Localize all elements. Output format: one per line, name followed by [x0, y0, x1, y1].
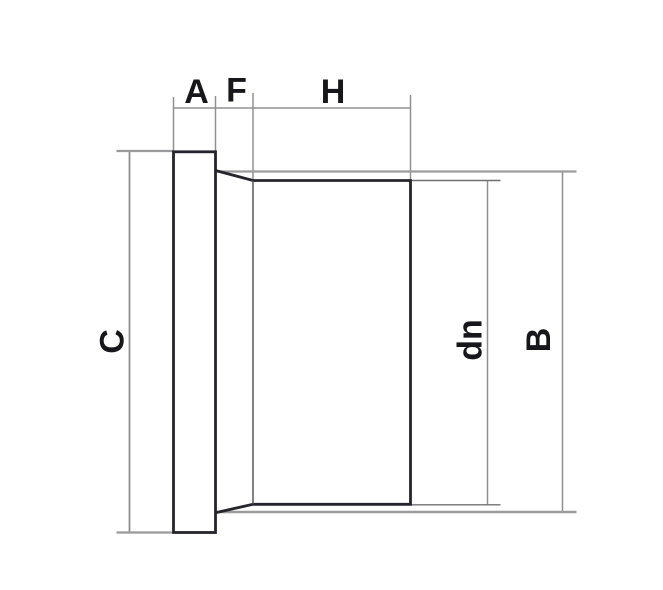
dim-label-dn: dn — [452, 319, 490, 361]
technical-drawing-page: A F H C dn B — [0, 0, 663, 590]
dim-label-h: H — [321, 73, 346, 111]
part-outline-group — [174, 152, 411, 533]
drawing-canvas: A F H C dn B — [0, 0, 663, 590]
dim-label-a: A — [184, 73, 209, 111]
dim-label-b: B — [520, 328, 558, 353]
dim-label-c: C — [94, 329, 132, 354]
dimension-labels-group: A F H C dn B — [94, 72, 559, 361]
dim-label-f: F — [226, 72, 247, 110]
flange-outline — [174, 152, 216, 533]
dimension-lines-group — [117, 93, 577, 533]
pipe-body-outline — [216, 171, 411, 513]
